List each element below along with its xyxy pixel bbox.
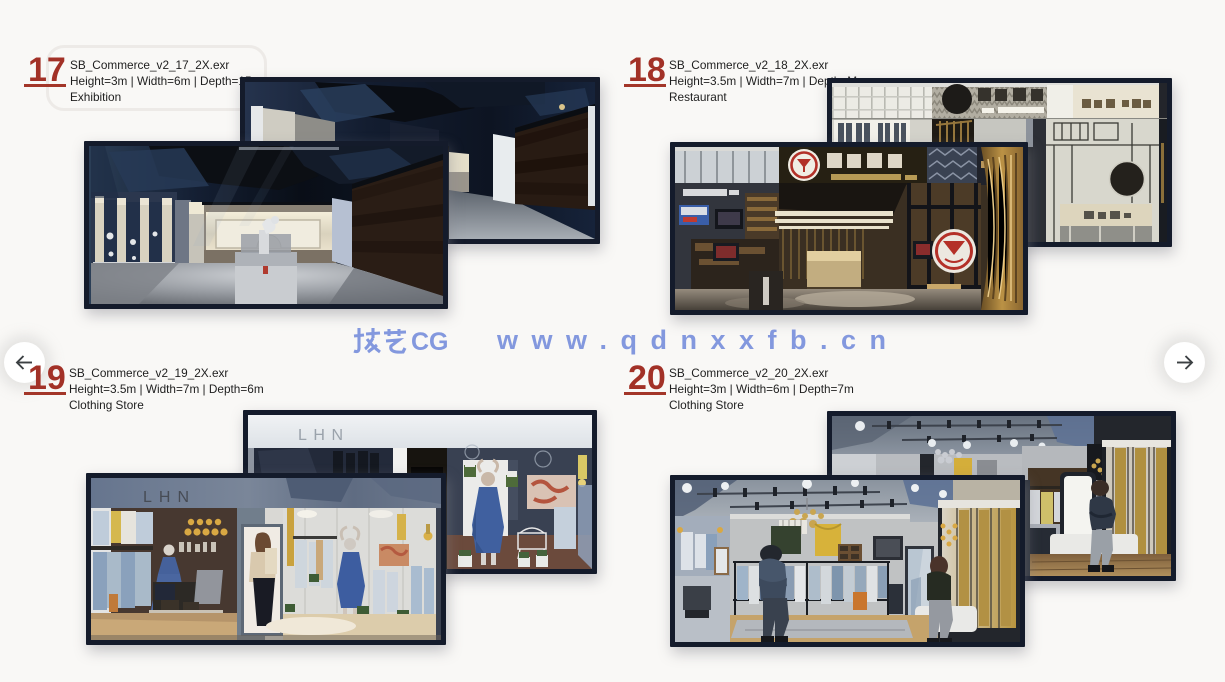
- svg-text:LHN: LHN: [143, 489, 196, 506]
- svg-text:LHN: LHN: [298, 427, 350, 444]
- svg-text:CG: CG: [411, 328, 449, 354]
